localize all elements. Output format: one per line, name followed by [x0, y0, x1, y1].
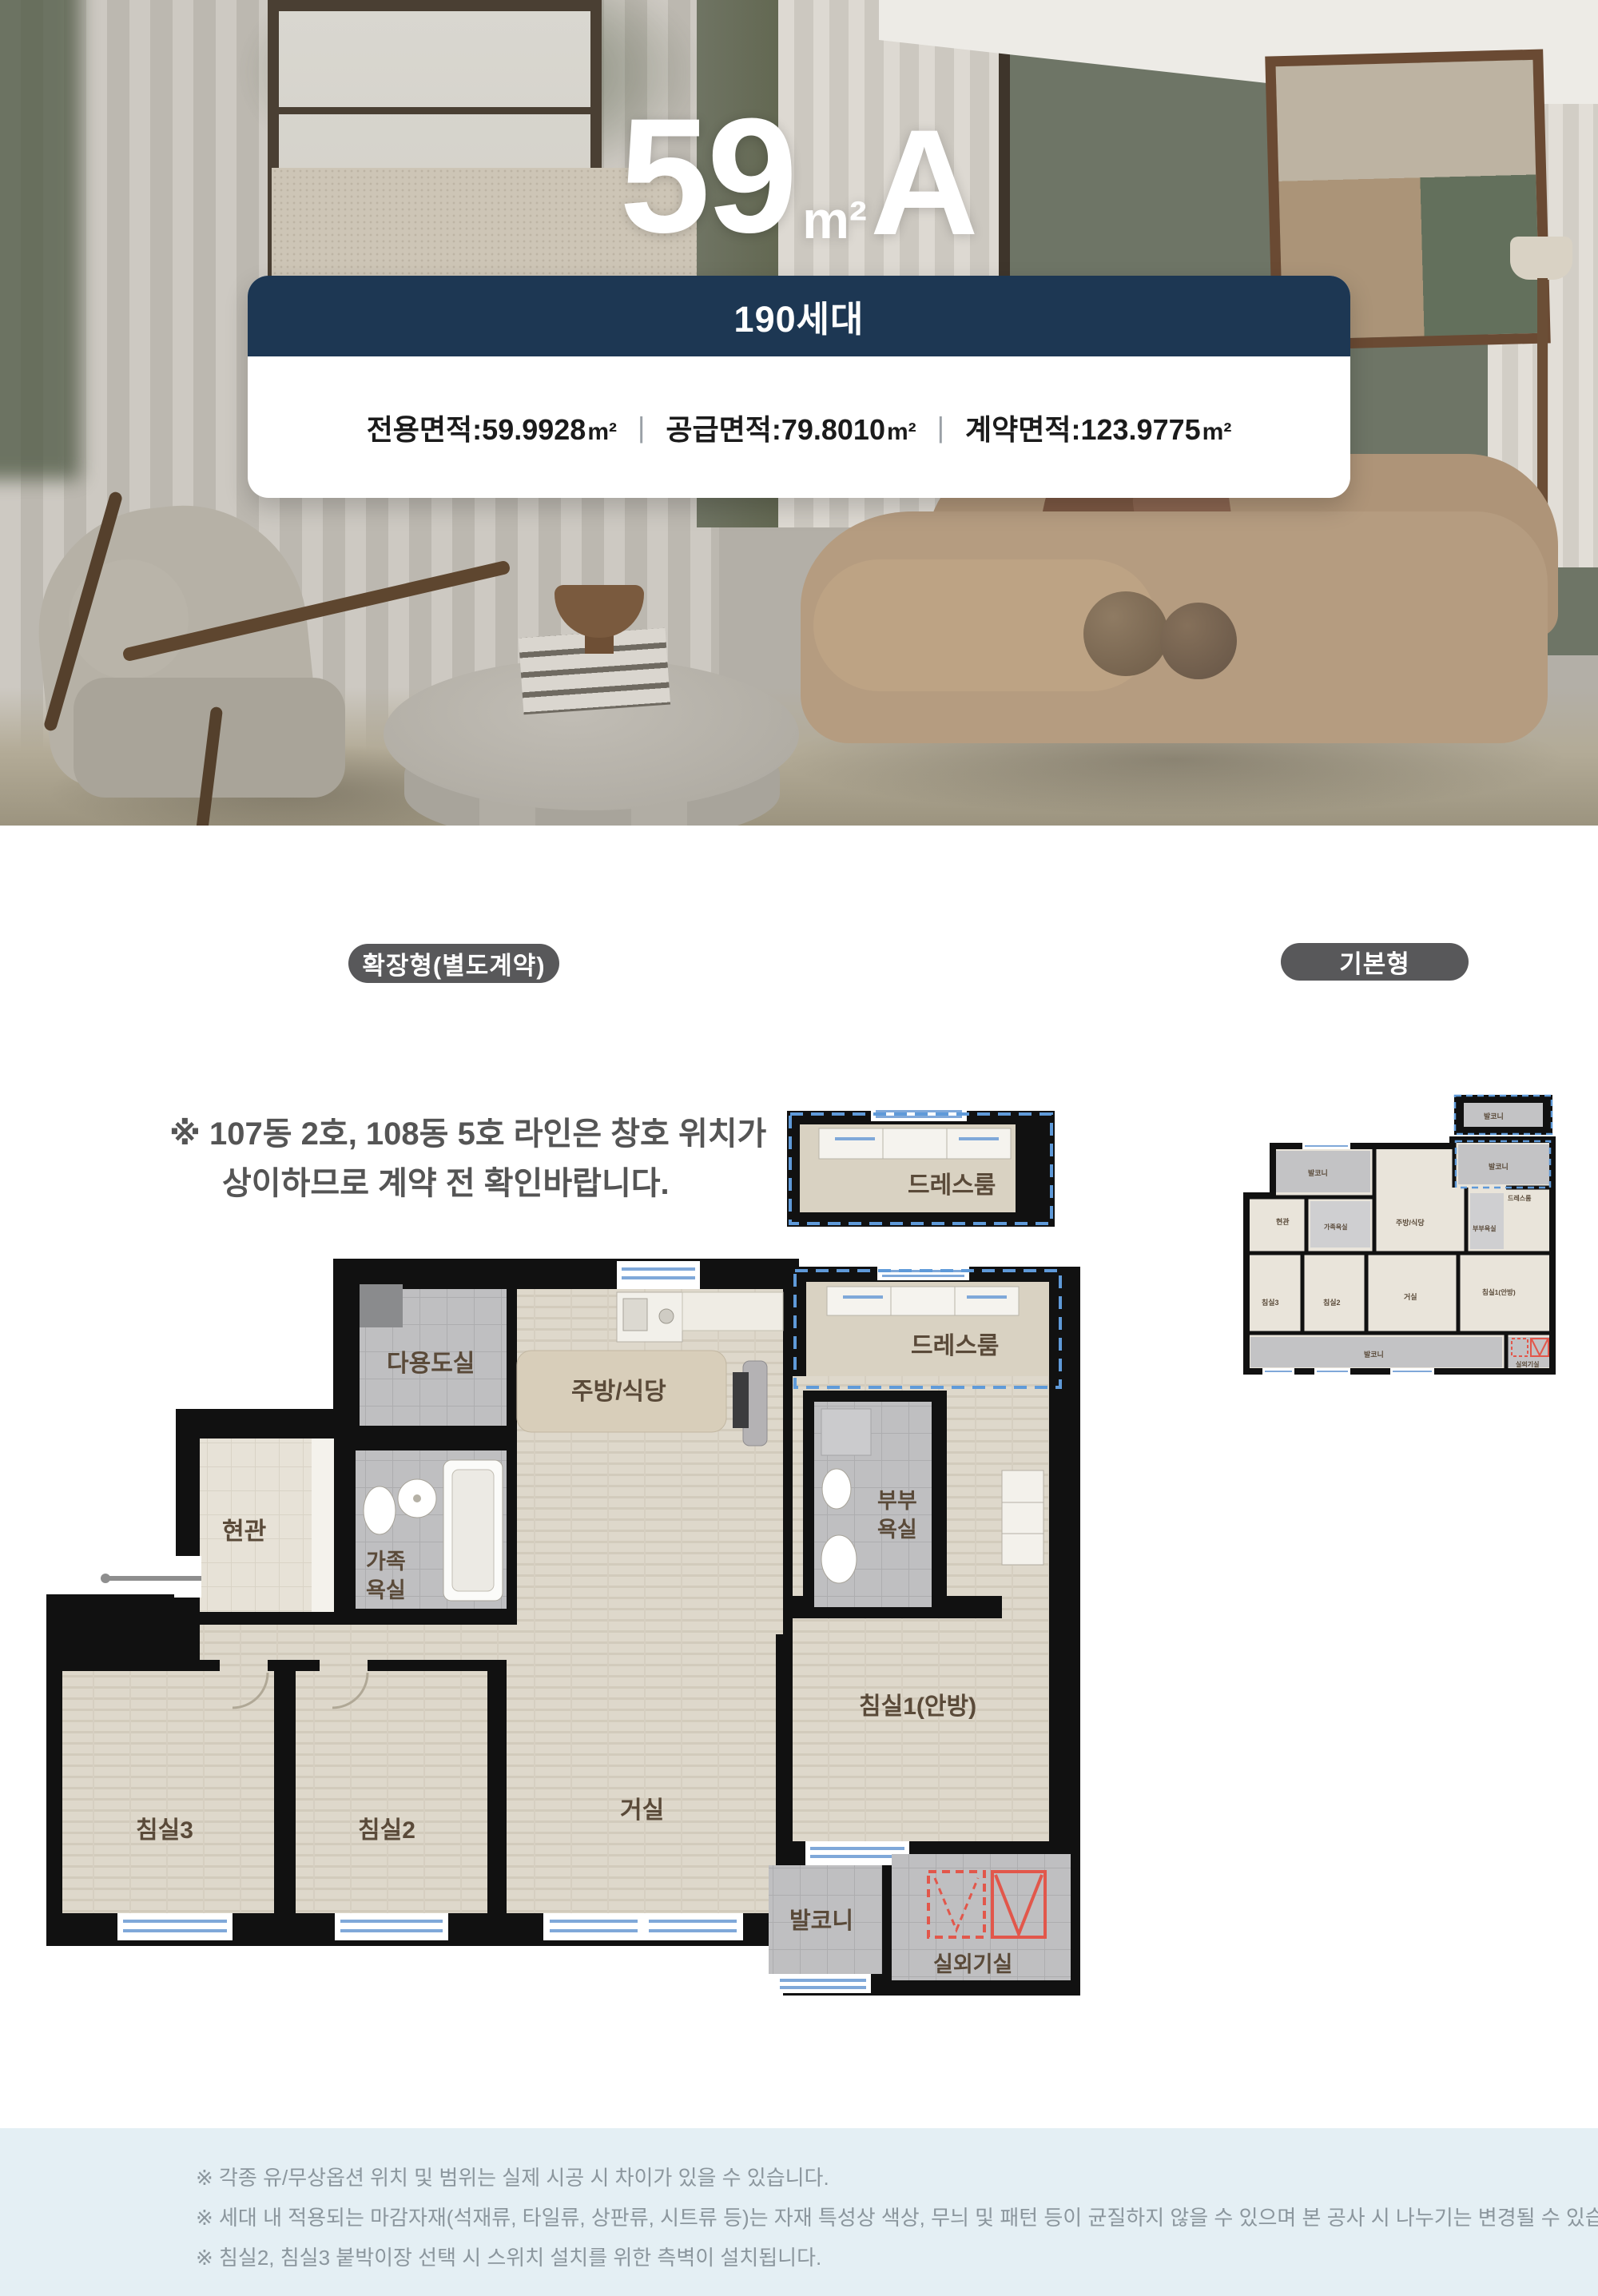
- toilet: [364, 1486, 396, 1534]
- area-info-row: 전용면적 : 59.9928m² | 공급면적 : 79.8010m² | 계약…: [248, 356, 1350, 498]
- tab-basic-type[interactable]: 기본형: [1281, 943, 1469, 981]
- mini-label-masterbath: 부부욕실: [1473, 1224, 1496, 1232]
- disclaimer-line1: ※ 각종 유/무상옵션 위치 및 범위는 실제 시공 시 차이가 있을 수 있습…: [196, 2162, 829, 2191]
- mini-label-living: 거실: [1404, 1292, 1417, 1301]
- tab-extended-type[interactable]: 확장형(별도계약): [348, 944, 559, 983]
- disclaimer-line3: ※ 침실2, 침실3 붙박이장 선택 시 스위치 설치를 위한 측벽이 설치됩니…: [196, 2242, 821, 2271]
- unit-type-title: 59 m² A: [0, 94, 1598, 257]
- shaft: [360, 1284, 403, 1327]
- dressroom-cabinet: [827, 1287, 1019, 1315]
- door-opening: [320, 1660, 368, 1673]
- room-label-bed1: 침실1(안방): [859, 1693, 976, 1720]
- entrance-closet: [312, 1438, 334, 1612]
- appliance: [733, 1372, 749, 1428]
- window: [117, 1913, 233, 1940]
- mini-label-bed1: 침실1(안방): [1482, 1288, 1516, 1296]
- washbasin: [822, 1469, 851, 1509]
- household-count-badge: 190세대: [248, 276, 1350, 356]
- window: [543, 1913, 743, 1940]
- toilet: [821, 1535, 857, 1583]
- kitchen-counter: [682, 1292, 783, 1331]
- room-label-acroom: 실외기실: [933, 1952, 1012, 1976]
- window: [877, 1267, 969, 1280]
- mini-label-acroom: 실외기실: [1516, 1360, 1539, 1368]
- room-label-living: 거실: [620, 1797, 664, 1824]
- room-label-kitchen: 주방/식당: [571, 1379, 666, 1405]
- area-contract: 계약면적 : 123.9775m²: [965, 407, 1231, 448]
- window: [775, 1974, 871, 1993]
- mini-label-dress: 드레스룸: [1508, 1194, 1532, 1202]
- room-label-balcony: 발코니: [789, 1908, 853, 1934]
- photo-ball-pillow: [1160, 603, 1237, 679]
- mini-label-entrance: 현관: [1276, 1217, 1290, 1226]
- mini-label-balcony: 발코니: [1308, 1168, 1328, 1177]
- floorplan-basic: 발코니 발코니 발코니: [1226, 1093, 1562, 1381]
- wardrobe: [1002, 1470, 1043, 1565]
- room-living-floor: [507, 1634, 776, 1913]
- mini-label-balcony: 발코니: [1484, 1112, 1504, 1120]
- mini-bath: [1470, 1193, 1504, 1249]
- mini-label-familybath: 가족욕실: [1324, 1223, 1347, 1231]
- room-label-familybath: 욕실: [366, 1578, 406, 1602]
- photo-ball-pillow: [1083, 591, 1168, 676]
- area-supply: 공급면적 : 79.8010m²: [666, 407, 916, 448]
- floorplan-extended: 드레스룸 주방/식당 다용도실 현관 가족 욕실: [40, 1107, 1087, 2002]
- title-type-letter: A: [870, 107, 979, 257]
- room-label-bed3: 침실3: [136, 1817, 193, 1844]
- separator: |: [638, 411, 645, 444]
- room-label-masterbath: 부부: [877, 1489, 917, 1513]
- disclaimer-line2: ※ 세대 내 적용되는 마감자재(석재류, 타일류, 상판류, 시트류 등)는 …: [196, 2202, 1598, 2231]
- room-bed2-floor: [296, 1671, 487, 1913]
- unit-info-card: 190세대 전용면적 : 59.9928m² | 공급면적 : 79.8010m…: [248, 276, 1350, 498]
- mini-label-bed2: 침실2: [1323, 1298, 1341, 1307]
- disclaimer-footer: ※ 각종 유/무상옵션 위치 및 범위는 실제 시공 시 차이가 있을 수 있습…: [0, 2128, 1598, 2296]
- window: [617, 1261, 700, 1289]
- shower: [821, 1409, 871, 1455]
- room-label-entrance: 현관: [222, 1518, 266, 1545]
- mini-label-balcony: 발코니: [1364, 1350, 1384, 1359]
- room-label-bed2: 침실2: [358, 1817, 415, 1844]
- separator: |: [937, 411, 944, 444]
- title-area-number: 59: [619, 94, 794, 257]
- door-opening: [220, 1660, 268, 1673]
- window: [335, 1913, 448, 1940]
- room-label-masterbath: 욕실: [877, 1518, 917, 1542]
- mini-label-bed3: 침실3: [1262, 1298, 1279, 1307]
- title-area-unit: m²: [802, 193, 867, 246]
- brochure-page: 59 m² A 190세대 전용면적 : 59.9928m² | 공급면적 : …: [0, 0, 1598, 2296]
- room-label-dressroom2: 드레스룸: [911, 1333, 999, 1359]
- room-label-familybath: 가족: [366, 1550, 406, 1574]
- mini-label-kitchen: 주방/식당: [1396, 1218, 1425, 1227]
- room-label-utility: 다용도실: [387, 1351, 475, 1377]
- room-label-dressroom1: 드레스룸: [908, 1172, 996, 1199]
- area-exclusive: 전용면적 : 59.9928m²: [367, 407, 617, 448]
- mini-label-balcony: 발코니: [1489, 1162, 1509, 1171]
- dressroom-cabinet: [819, 1128, 1011, 1159]
